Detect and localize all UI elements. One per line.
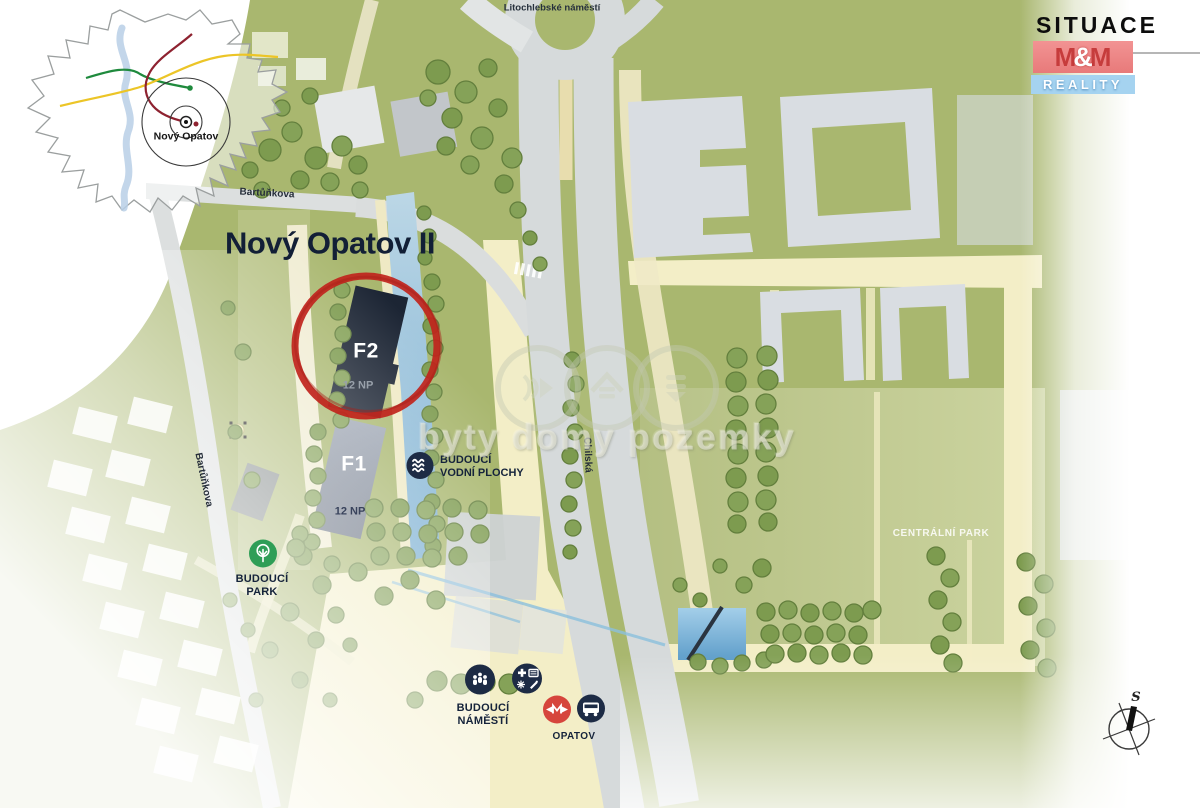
tree [495,175,513,193]
future-park-label: BUDOUCÍ PARK [236,573,289,599]
tree [510,202,526,218]
tree [783,624,801,642]
tree [533,257,547,271]
building-f1-label: F1 [341,451,367,476]
site-map [0,0,1200,808]
tree [759,513,777,531]
logo-situace-text: SITUACE [1036,12,1158,39]
metro-terminus [187,85,193,91]
tree [291,171,309,189]
tree [352,182,368,198]
tree [713,559,727,573]
tree [736,577,752,593]
tree [827,624,845,642]
tree [801,604,819,622]
tree [566,472,582,488]
future-square-label: BUDOUCÍ NÁMĚSTÍ [457,702,510,728]
tree [302,88,318,104]
tree [728,515,746,533]
building-f2-floors: 12 NP [343,379,374,392]
inset-place-label: Nový Opatov [154,131,219,144]
tree [523,231,537,245]
tree [756,394,776,414]
situation-map-page: Nový Opatov II Litochlebské náměstí Bart… [0,0,1200,808]
tree [242,162,258,178]
bus-station-icon [576,694,606,729]
future-square-people-icon [464,664,496,701]
tree [420,90,436,106]
tree [471,127,493,149]
tree [927,547,945,565]
tree [779,601,797,619]
tree [845,604,863,622]
future-water-line2: VODNÍ PLOCHY [440,467,524,480]
future-park-line2: PARK [236,586,289,599]
street-label-litochlebske: Litochlebské náměstí [504,2,601,13]
logo-m-right: M [1090,44,1112,70]
tree [758,466,778,486]
tree [693,593,707,607]
metro-station-icon [542,695,572,730]
tree [761,625,779,643]
future-square-services-icon [511,663,543,700]
logo-ampersand: & [1073,44,1093,71]
tree [479,59,497,77]
future-park-icon [248,539,278,574]
tree [442,108,462,128]
tree [753,559,771,577]
tree [758,370,778,390]
tree [726,468,746,488]
area-label-centralni-park: CENTRÁLNÍ PARK [893,528,990,540]
tree [349,156,367,174]
tree [417,206,431,220]
tree [756,490,776,510]
future-square-line2: NÁMĚSTÍ [457,715,510,728]
inset-edge-building [296,58,326,80]
compass-north-label: S [1131,690,1140,706]
tree [461,156,479,174]
tree [757,603,775,621]
fade-right [1000,0,1200,808]
future-square-line1: BUDOUCÍ [457,702,510,715]
metro-terminus [194,122,199,127]
tree [282,122,302,142]
tree [805,626,823,644]
tree [726,372,746,392]
tree [728,492,748,512]
building-f1-floors: 12 NP [335,505,366,518]
tree [929,591,947,609]
watermark-text: byty domy pozemky [418,415,796,458]
tree [943,613,961,631]
tree [823,602,841,620]
location-dot [184,120,188,124]
tree [849,626,867,644]
tree [673,578,687,592]
opatov-label: OPATOV [553,731,596,743]
tree [565,520,581,536]
tree [757,346,777,366]
tree [728,396,748,416]
inset-edge-block [252,32,288,58]
tree [332,136,352,156]
tree [305,147,327,169]
logo-mm-box: M & M [1033,41,1133,73]
tree [426,60,450,84]
tree [489,99,507,117]
logo-reality-text: REALITY [1043,77,1123,92]
page-title: Nový Opatov II [225,224,435,261]
future-park-line1: BUDOUCÍ [236,573,289,586]
tree [502,148,522,168]
logo-reality-box: REALITY [1031,75,1135,94]
tree [437,137,455,155]
tree [863,601,881,619]
building-f2-label: F2 [353,338,379,363]
tree [321,173,339,191]
agency-logo: SITUACE M & M REALITY [1028,12,1158,94]
tree [941,569,959,587]
tree [561,496,577,512]
tree [727,348,747,368]
tree [259,139,281,161]
tree [563,545,577,559]
tree [455,81,477,103]
